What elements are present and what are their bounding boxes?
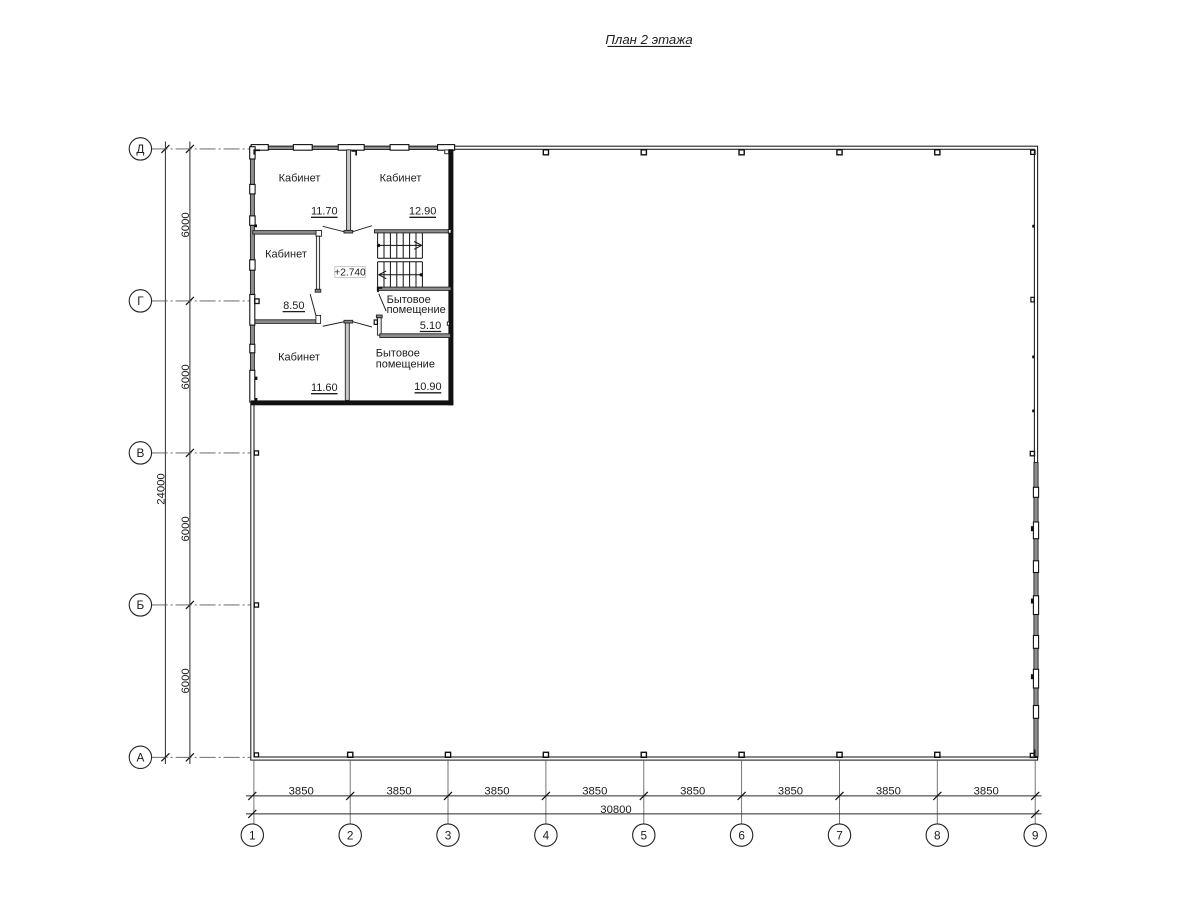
svg-text:План 2 этажа: План 2 этажа [605,32,692,47]
svg-text:А: А [136,751,144,765]
svg-text:3850: 3850 [974,786,999,798]
svg-text:10.90: 10.90 [414,381,442,393]
svg-text:6000: 6000 [180,212,192,237]
svg-text:12.90: 12.90 [409,206,437,218]
svg-text:6: 6 [738,828,745,842]
svg-text:3850: 3850 [778,786,803,798]
svg-text:3850: 3850 [876,786,901,798]
svg-text:помещение: помещение [376,359,435,371]
svg-text:4: 4 [543,828,550,842]
svg-text:Кабинет: Кабинет [380,172,422,184]
svg-text:Б: Б [137,598,145,612]
svg-text:24000: 24000 [156,473,168,504]
svg-text:Кабинет: Кабинет [265,248,307,260]
svg-text:7: 7 [836,828,843,842]
svg-text:6000: 6000 [180,516,192,541]
svg-text:Кабинет: Кабинет [278,352,320,364]
svg-text:6000: 6000 [180,668,192,693]
svg-text:1: 1 [249,828,256,842]
svg-text:6000: 6000 [180,364,192,389]
svg-text:3850: 3850 [582,786,607,798]
svg-text:5.10: 5.10 [420,320,441,332]
svg-text:В: В [136,446,144,460]
svg-text:3850: 3850 [387,786,412,798]
svg-text:30800: 30800 [600,804,631,816]
svg-text:3: 3 [445,828,452,842]
svg-text:8.50: 8.50 [283,300,304,312]
svg-text:Кабинет: Кабинет [279,172,321,184]
svg-text:2: 2 [347,828,354,842]
svg-text:Д: Д [136,142,144,156]
svg-text:11.70: 11.70 [311,206,338,218]
svg-text:+2.740: +2.740 [334,267,366,278]
svg-text:8: 8 [934,828,941,842]
svg-text:3850: 3850 [484,786,509,798]
svg-text:5: 5 [641,828,648,842]
svg-text:Г: Г [137,294,144,308]
svg-text:3850: 3850 [289,786,314,798]
svg-text:11.60: 11.60 [311,382,338,394]
svg-text:3850: 3850 [680,786,705,798]
svg-text:9: 9 [1032,828,1039,842]
svg-text:помещение: помещение [387,304,446,316]
